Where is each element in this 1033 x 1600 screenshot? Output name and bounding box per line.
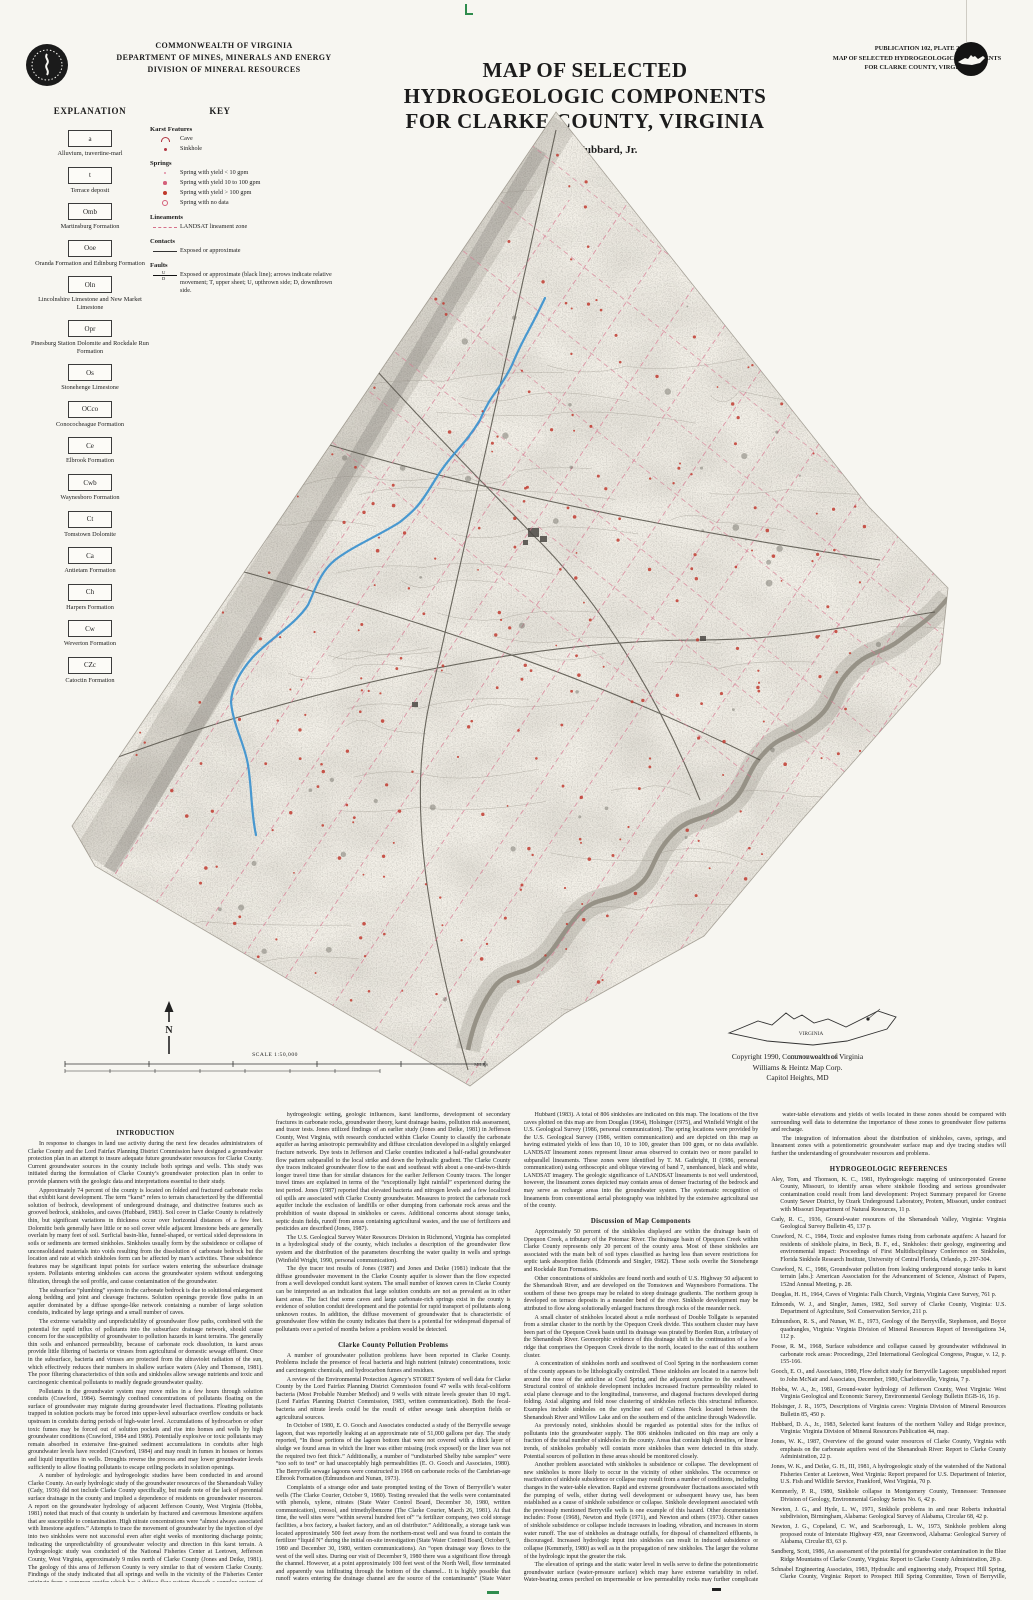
paragraph: Approximately 50 percent of the sinkhole… [524, 1229, 759, 1275]
paragraph: The U.S. Geological Survey Water Resourc… [276, 1235, 511, 1265]
paragraph: The integration of information about the… [771, 1136, 1006, 1159]
section-heading: INTRODUCTION [28, 1130, 263, 1137]
paragraph: Complaints of a strange odor and taste p… [276, 1485, 511, 1582]
copyright-line-3: Capitol Heights, MD [655, 1073, 940, 1084]
section-heading: Discussion of Map Components [524, 1218, 759, 1225]
paragraph: The elevation of springs and the static … [524, 1562, 759, 1582]
reference-entry: Kemmerly, P. R., 1980, Sinkhole collapse… [771, 1489, 1006, 1504]
north-label: N [165, 1025, 173, 1036]
reference-entry: Jones, W. K., 1987, Overview of the grou… [771, 1439, 1006, 1462]
reference-entry: Gooch, E. O., and Associates, 1980, Flow… [771, 1369, 1006, 1384]
references-column: water-table elevations and yields of wel… [771, 1112, 1006, 1582]
reference-entry: Hubbard, D. A., Jr., 1983, Selected kars… [771, 1422, 1006, 1437]
section-heading: Clarke County Pollution Problems [276, 1342, 511, 1349]
copyright-block: Copyright 1990, Commonwealth of Virginia… [655, 1052, 940, 1084]
virginia-outline-icon: VIRGINIA [726, 1006, 901, 1050]
discussion-column: Hubbard (1983). A total of 806 sinkholes… [524, 1112, 759, 1582]
copyright-line-1: Copyright 1990, Commonwealth of Virginia [655, 1052, 940, 1063]
paragraph: The dye tracer test results of Jones (19… [276, 1266, 511, 1334]
paragraph: The subsurface “plumbing” system in the … [28, 1288, 263, 1318]
intro-column: INTRODUCTIONIn response to changes in la… [28, 1112, 263, 1582]
reference-entry: Foose, R. M., 1968, Surface subsidence a… [771, 1344, 1006, 1367]
paragraph: A small cluster of sinkholes located abo… [524, 1315, 759, 1361]
paragraph: Approximately 74 percent of the county i… [28, 1188, 263, 1287]
reference-entry: Douglas, H. H., 1964, Caves of Virginia:… [771, 1292, 1006, 1300]
copyright-line-2: Williams & Heintz Map Corp. [655, 1063, 940, 1074]
reference-entry: Jones, W. K., and Deike, G. H., III, 198… [771, 1464, 1006, 1487]
reference-entry: Cady, R. C., 1936, Ground-water resource… [771, 1217, 1006, 1232]
reference-entry: Newton, J. G., and Hyde, L. W., 1971, Si… [771, 1507, 1006, 1522]
paragraph: As previously noted, sinkholes should be… [524, 1423, 759, 1461]
reference-entry: Sandberg, Scott, 1986, An assessment of … [771, 1549, 1006, 1564]
reference-entry: Schnabel Engineering Associates, 1983, H… [771, 1567, 1006, 1582]
scan-speckle [60, 100, 960, 1100]
paragraph: Pollutants in the groundwater system may… [28, 1389, 263, 1473]
reference-entry: Holsinger, J. R., 1975, Descriptions of … [771, 1404, 1006, 1419]
reference-entry: Newton, J. G., Copeland, C. W., and Scar… [771, 1524, 1006, 1547]
svg-text:MILES: MILES [474, 1062, 488, 1067]
section-heading: HYDROGEOLOGIC REFERENCES [771, 1166, 1006, 1173]
reference-entry: Crawford, N. C., 1984, Toxic and explosi… [771, 1234, 1006, 1264]
paragraph: water-table elevations and yields of wel… [771, 1112, 1006, 1135]
paragraph: In October of 1980, E. O. Gooch and Asso… [276, 1423, 511, 1484]
paragraph: A number of groundwater pollution proble… [276, 1353, 511, 1376]
reference-entry: Aley, Tom, and Thomson, K. C., 1981, Hyd… [771, 1177, 1006, 1215]
paragraph: A concentration of sinkholes north and s… [524, 1361, 759, 1422]
paragraph: A review of the Environmental Protection… [276, 1377, 511, 1423]
paragraph: hydrogeologic setting, geologic influenc… [276, 1112, 511, 1234]
scale-bar: MILES [60, 1058, 490, 1076]
text-columns: INTRODUCTIONIn response to changes in la… [28, 1112, 1006, 1582]
map-plate-page: COMMONWEALTH OF VIRGINIA DEPARTMENT OF M… [0, 0, 1033, 1600]
paragraph: In response to changes in land use activ… [28, 1141, 263, 1187]
reference-entry: Hobba, W. A., Jr., 1981, Ground-water hy… [771, 1387, 1006, 1402]
paragraph: A number of hydrologic and hydrogeologic… [28, 1473, 263, 1582]
svg-text:VIRGINIA: VIRGINIA [798, 1031, 823, 1037]
paragraph: Another problem associated with sinkhole… [524, 1462, 759, 1561]
paragraph: Hubbard (1983). A total of 806 sinkholes… [524, 1112, 759, 1211]
reference-entry: Crawford, N. C., 1986, Groundwater pollu… [771, 1267, 1006, 1290]
reference-entry: Edmonds, W. J., and Singler, James, 1982… [771, 1302, 1006, 1317]
reference-entry: Edmundson, R. S., and Nunan, W. E., 1973… [771, 1319, 1006, 1342]
scale-bar-block: SCALE 1:50,000 MILES [60, 1052, 490, 1081]
paragraph: The extreme variability and unpredictabi… [28, 1319, 263, 1387]
paragraph: Other concentrations of sinkholes are fo… [524, 1276, 759, 1314]
pollution-column: hydrogeologic setting, geologic influenc… [276, 1112, 511, 1582]
